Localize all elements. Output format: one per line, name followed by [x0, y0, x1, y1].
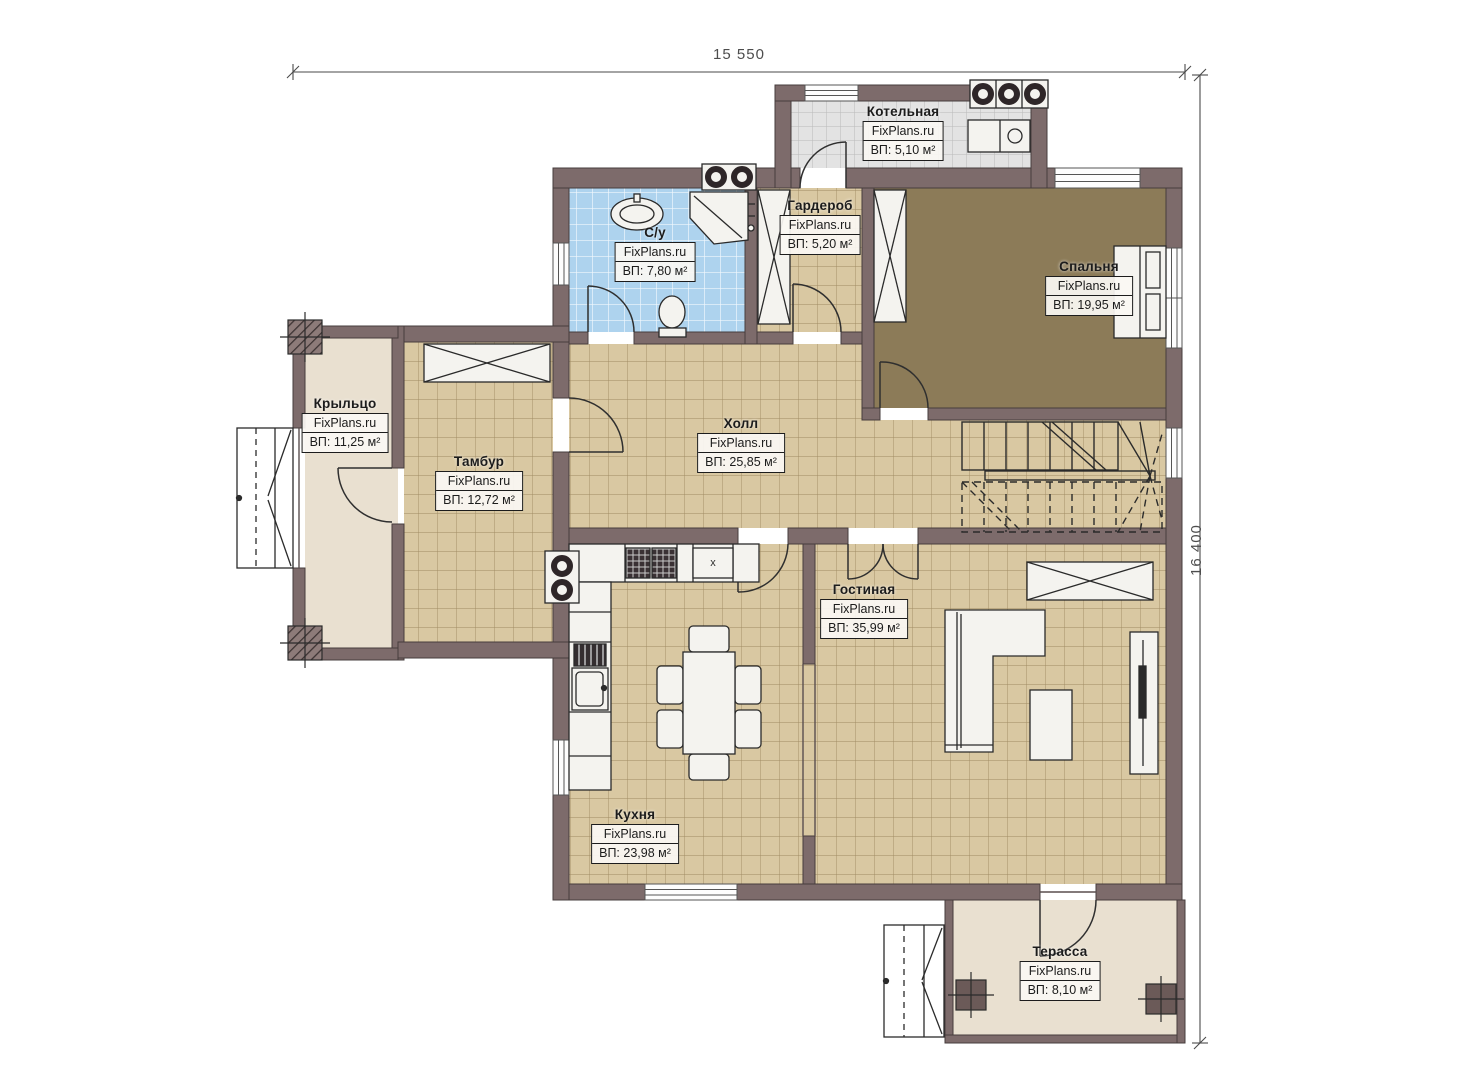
toilet	[659, 296, 686, 337]
kitchen-unit-mark: x	[710, 557, 716, 569]
kitchen-counter-top	[569, 544, 759, 582]
room-info-box: FixPlans.ru ВП: 35,99 м²	[820, 599, 908, 639]
chair	[657, 666, 683, 704]
room-info-box: FixPlans.ru ВП: 8,10 м²	[1020, 961, 1101, 1001]
room-label-living: Гостиная FixPlans.ru ВП: 35,99 м²	[820, 582, 908, 639]
room-name: Гостиная	[820, 582, 908, 597]
room-watermark: FixPlans.ru	[436, 472, 522, 490]
chair	[689, 626, 729, 652]
chair	[657, 710, 683, 748]
sink	[572, 668, 608, 710]
room-info-box: FixPlans.ru ВП: 19,95 м²	[1045, 276, 1133, 316]
room-area: ВП: 23,98 м²	[592, 843, 678, 862]
room-area: ВП: 35,99 м²	[821, 618, 907, 637]
room-label-hall: Холл FixPlans.ru ВП: 25,85 м²	[697, 416, 785, 473]
room-name: Терасса	[1020, 944, 1101, 959]
hall-floor-stairs	[862, 420, 1166, 528]
room-area: ВП: 5,20 м²	[781, 234, 860, 253]
room-name: Тамбур	[435, 454, 523, 469]
room-label-porch: Крыльцо FixPlans.ru ВП: 11,25 м²	[302, 396, 389, 453]
window-top-right	[1055, 168, 1140, 188]
room-watermark: FixPlans.ru	[1021, 962, 1100, 980]
closet-bedroom	[874, 190, 906, 322]
room-info-box: FixPlans.ru ВП: 23,98 м²	[591, 824, 679, 864]
chimney-block	[970, 80, 1048, 108]
kitchen-counter-left	[569, 582, 611, 790]
room-label-vestibule: Тамбур FixPlans.ru ВП: 12,72 м²	[435, 454, 523, 511]
boiler-unit	[968, 120, 1030, 152]
room-info-box: FixPlans.ru ВП: 12,72 м²	[435, 471, 523, 511]
room-name: Спальня	[1045, 259, 1133, 274]
room-name: Кухня	[591, 807, 679, 822]
room-label-kitchen: Кухня FixPlans.ru ВП: 23,98 м²	[591, 807, 679, 864]
room-watermark: FixPlans.ru	[616, 243, 695, 261]
room-name: Гардероб	[780, 198, 861, 213]
tv-stand	[1130, 632, 1158, 774]
room-area: ВП: 8,10 м²	[1021, 980, 1100, 999]
room-info-box: FixPlans.ru ВП: 25,85 м²	[697, 433, 785, 473]
room-name: Крыльцо	[302, 396, 389, 411]
room-watermark: FixPlans.ru	[1046, 277, 1132, 295]
room-area: ВП: 19,95 м²	[1046, 295, 1132, 314]
room-label-bathroom: С/у FixPlans.ru ВП: 7,80 м²	[615, 225, 696, 282]
dimension-top-label: 15 550	[713, 46, 765, 63]
room-info-box: FixPlans.ru ВП: 5,20 м²	[780, 215, 861, 255]
closet-vestibule	[424, 344, 550, 382]
window-bathroom-left	[553, 243, 569, 285]
room-watermark: FixPlans.ru	[821, 600, 907, 618]
chair	[735, 710, 761, 748]
vent-flues-kitchen	[545, 551, 579, 603]
room-info-box: FixPlans.ru ВП: 11,25 м²	[302, 413, 389, 453]
room-area: ВП: 12,72 м²	[436, 490, 522, 509]
floor-plan-drawing	[0, 0, 1473, 1080]
floor-plan: Котельная FixPlans.ru ВП: 5,10 м² С/у Fi…	[0, 0, 1473, 1080]
room-name: Холл	[697, 416, 785, 431]
room-area: ВП: 11,25 м²	[303, 432, 388, 451]
window-kitchen-left	[553, 740, 569, 795]
chair	[735, 666, 761, 704]
room-area: ВП: 5,10 м²	[864, 140, 943, 159]
window-kitchen-bottom	[645, 884, 737, 900]
room-watermark: FixPlans.ru	[698, 434, 784, 452]
closet-living	[1027, 562, 1153, 600]
window-boiler-top	[805, 85, 858, 101]
room-watermark: FixPlans.ru	[592, 825, 678, 843]
room-area: ВП: 25,85 м²	[698, 452, 784, 471]
porch-floor	[305, 338, 398, 648]
window-bedroom-right	[1166, 248, 1182, 348]
stove	[626, 548, 650, 578]
room-name: С/у	[615, 225, 696, 240]
room-label-boiler: Котельная FixPlans.ru ВП: 5,10 м²	[863, 104, 944, 161]
room-watermark: FixPlans.ru	[864, 122, 943, 140]
room-label-wardrobe: Гардероб FixPlans.ru ВП: 5,20 м²	[780, 198, 861, 255]
room-info-box: FixPlans.ru ВП: 5,10 м²	[863, 121, 944, 161]
room-area: ВП: 7,80 м²	[616, 261, 695, 280]
stove-2	[652, 548, 676, 578]
vent-flues-bathroom	[702, 164, 756, 190]
room-label-bedroom: Спальня FixPlans.ru ВП: 19,95 м²	[1045, 259, 1133, 316]
dimension-right-label: 16 400	[1188, 524, 1205, 576]
coffee-table	[1030, 690, 1072, 760]
porch-steps	[237, 428, 294, 568]
chair	[689, 754, 729, 780]
room-label-terrace: Терасса FixPlans.ru ВП: 8,10 м²	[1020, 944, 1101, 1001]
appliance	[574, 644, 606, 666]
room-info-box: FixPlans.ru ВП: 7,80 м²	[615, 242, 696, 282]
room-watermark: FixPlans.ru	[303, 414, 388, 432]
dining-table	[683, 652, 735, 754]
window-stairs-right	[1166, 428, 1182, 478]
room-name: Котельная	[863, 104, 944, 119]
terrace-steps	[884, 925, 945, 1037]
room-watermark: FixPlans.ru	[781, 216, 860, 234]
